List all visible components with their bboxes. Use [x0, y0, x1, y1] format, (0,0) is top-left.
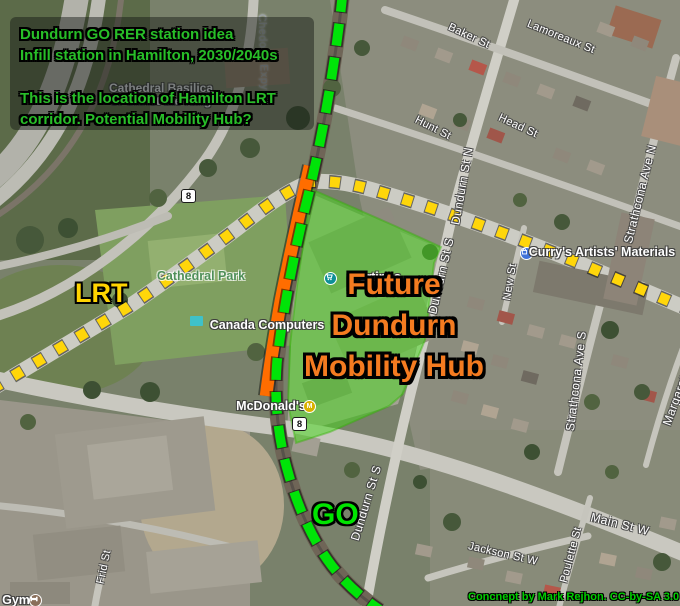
title-line-2: Infill station in Hamilton, 2030/2040s [20, 45, 314, 66]
title-line-4: corridor. Potential Mobility Hub? [20, 109, 314, 130]
credit-label: Concnept by Mark Rejhon. CC-by-SA 3.0 [468, 591, 679, 603]
hub-label-line-1: Future [304, 264, 484, 305]
title-box: Dundurn GO RER station idea Infill stati… [10, 17, 314, 130]
future-hub-label: Future Dundurn Mobility Hub [304, 264, 484, 387]
title-line-3: This is the location of Hamilton LRT [20, 88, 314, 109]
hub-label-line-3: Mobility Hub [304, 346, 484, 387]
map-screenshot: Baker St Lamoreaux St Hunt St Head St Du… [0, 0, 680, 606]
go-label: GO [312, 498, 359, 532]
title-line-1: Dundurn GO RER station idea [20, 24, 314, 45]
lrt-label: LRT [75, 278, 127, 309]
title-box-spacer [20, 66, 314, 88]
annotation-layer: Dundurn GO RER station idea Infill stati… [0, 0, 680, 606]
hub-label-line-2: Dundurn [304, 305, 484, 346]
